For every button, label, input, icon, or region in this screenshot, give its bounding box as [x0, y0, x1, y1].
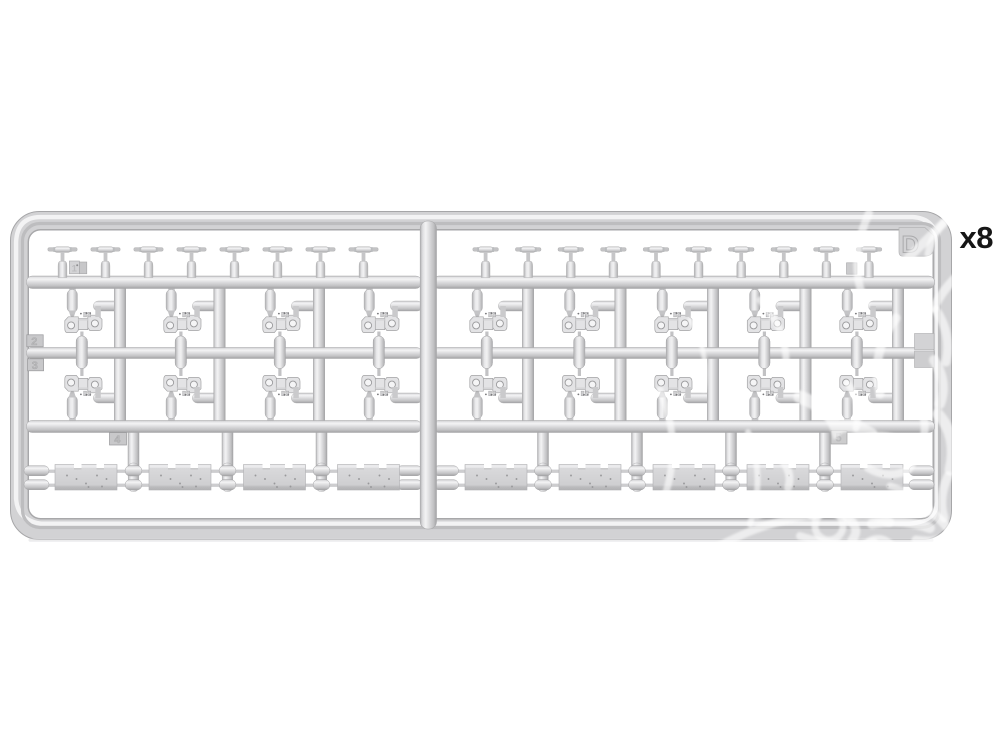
svg-text:1: 1 [72, 263, 78, 274]
svg-text:4: 4 [114, 434, 121, 446]
svg-text:3: 3 [32, 360, 38, 372]
svg-text:2: 2 [31, 336, 37, 348]
